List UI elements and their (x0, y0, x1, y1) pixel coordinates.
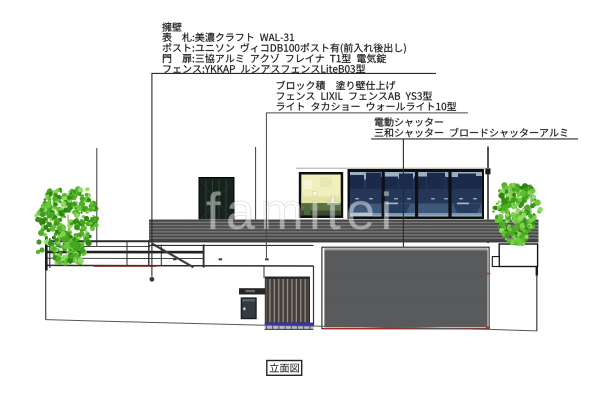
svg-text:famitei: famitei (206, 183, 398, 241)
